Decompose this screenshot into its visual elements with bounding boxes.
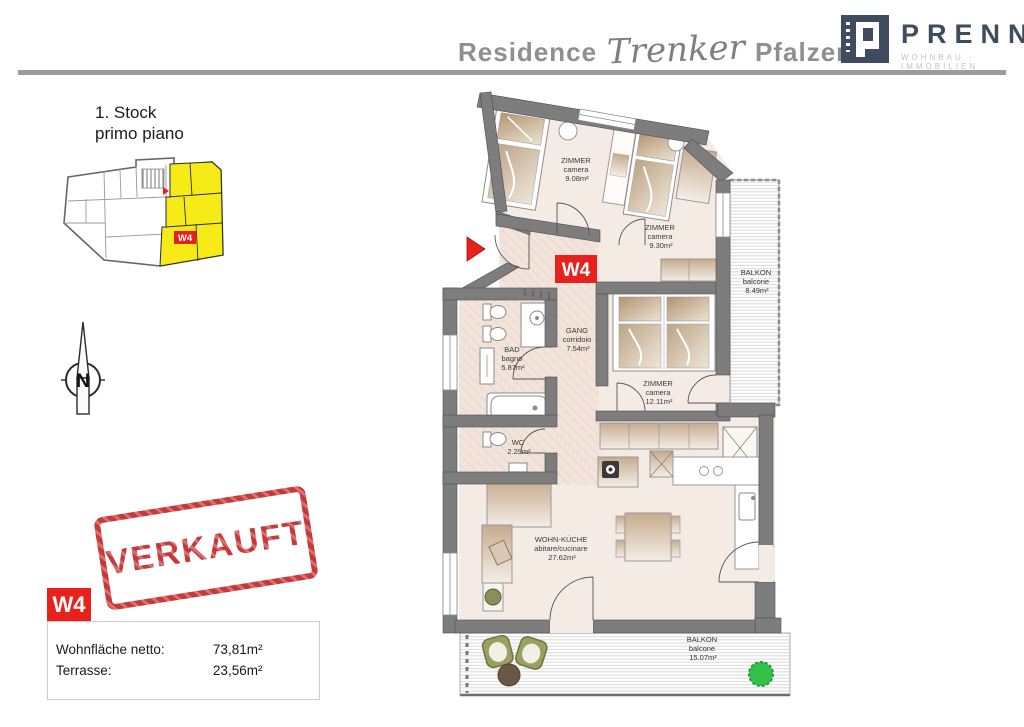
info-row-terrace: Terrasse: 23,56m² — [56, 663, 311, 678]
balcony-table — [498, 664, 520, 686]
wardrobe-row — [600, 423, 718, 449]
room-label-zimmer2: ZIMMER camera 9.30m² — [645, 223, 677, 250]
main-floor-plan: BALKON balcone 8.49m² BALKON balcone 15.… — [437, 85, 797, 710]
title-part-trenker: Trenker — [606, 28, 745, 73]
floorplan-page: Residence Trenker Pfalzen PRENN WOHNBAU … — [0, 0, 1024, 727]
balcony-bottom: BALKON balcone 15.07m² — [460, 633, 790, 695]
unit-tag-badge: W4 — [47, 588, 91, 621]
info-row-living-area: Wohnfläche netto: 73,81m² — [56, 642, 311, 657]
info-label: Terrasse: — [56, 663, 213, 678]
plant-icon — [749, 662, 773, 686]
floor-label: 1. Stock primo piano — [95, 102, 184, 145]
mini-plan-unit-tag: W4 — [178, 233, 193, 244]
compass-icon: N — [52, 318, 114, 418]
sold-stamp: VERKAUFT — [93, 485, 319, 611]
dining-set — [616, 513, 680, 561]
room-label-balkon2: BALKON balcone 15.07m² — [687, 635, 720, 662]
title-part-pfalzen: Pfalzen — [755, 37, 853, 68]
sold-stamp-text: VERKAUFT — [104, 513, 309, 583]
info-label: Wohnfläche netto: — [56, 642, 213, 657]
balcony-right: BALKON balcone 8.49m² — [730, 180, 779, 405]
room-label-balkon1: BALKON balcone 8.49m² — [741, 268, 774, 295]
floor-label-it: primo piano — [95, 123, 184, 144]
info-value: 73,81m² — [213, 642, 311, 657]
bed-double — [613, 293, 715, 371]
room-label-gang: GANG corridoio 7.54m² — [563, 326, 594, 353]
stove-block — [598, 457, 638, 487]
info-value: 23,56m² — [213, 663, 311, 678]
plant-icon — [485, 589, 501, 605]
document-title: Residence Trenker Pfalzen — [458, 30, 853, 70]
svg-text:W4: W4 — [562, 260, 591, 281]
prenn-logo-icon — [841, 15, 889, 63]
logo-strip — [846, 22, 850, 52]
brand-name: PRENN — [901, 21, 1024, 48]
compass-north-label: N — [76, 371, 90, 392]
header-divider — [18, 70, 1006, 75]
floor-label-de: 1. Stock — [95, 102, 184, 123]
room-label-bad: BAD bagno 5.87m² — [501, 345, 525, 372]
overview-mini-plan: W4 — [62, 157, 226, 271]
brand-tagline: WOHNBAU · IMMOBILIEN — [901, 53, 1024, 71]
stool — [559, 122, 577, 140]
title-part-residence: Residence — [458, 37, 597, 68]
unit-info-panel: Wohnfläche netto: 73,81m² Terrasse: 23,5… — [47, 621, 320, 700]
logo-p-shape — [856, 22, 879, 49]
plan-unit-tag: W4 — [555, 255, 597, 283]
entry-arrow-icon — [467, 237, 485, 261]
brand-block: PRENN WOHNBAU · IMMOBILIEN — [841, 15, 1024, 71]
unit-tag-text: W4 — [53, 592, 86, 618]
room-label-zimmer3: ZIMMER camera 12.11m² — [643, 379, 675, 406]
room-label-zimmer1: ZIMMER camera 9.08m² — [561, 156, 593, 183]
